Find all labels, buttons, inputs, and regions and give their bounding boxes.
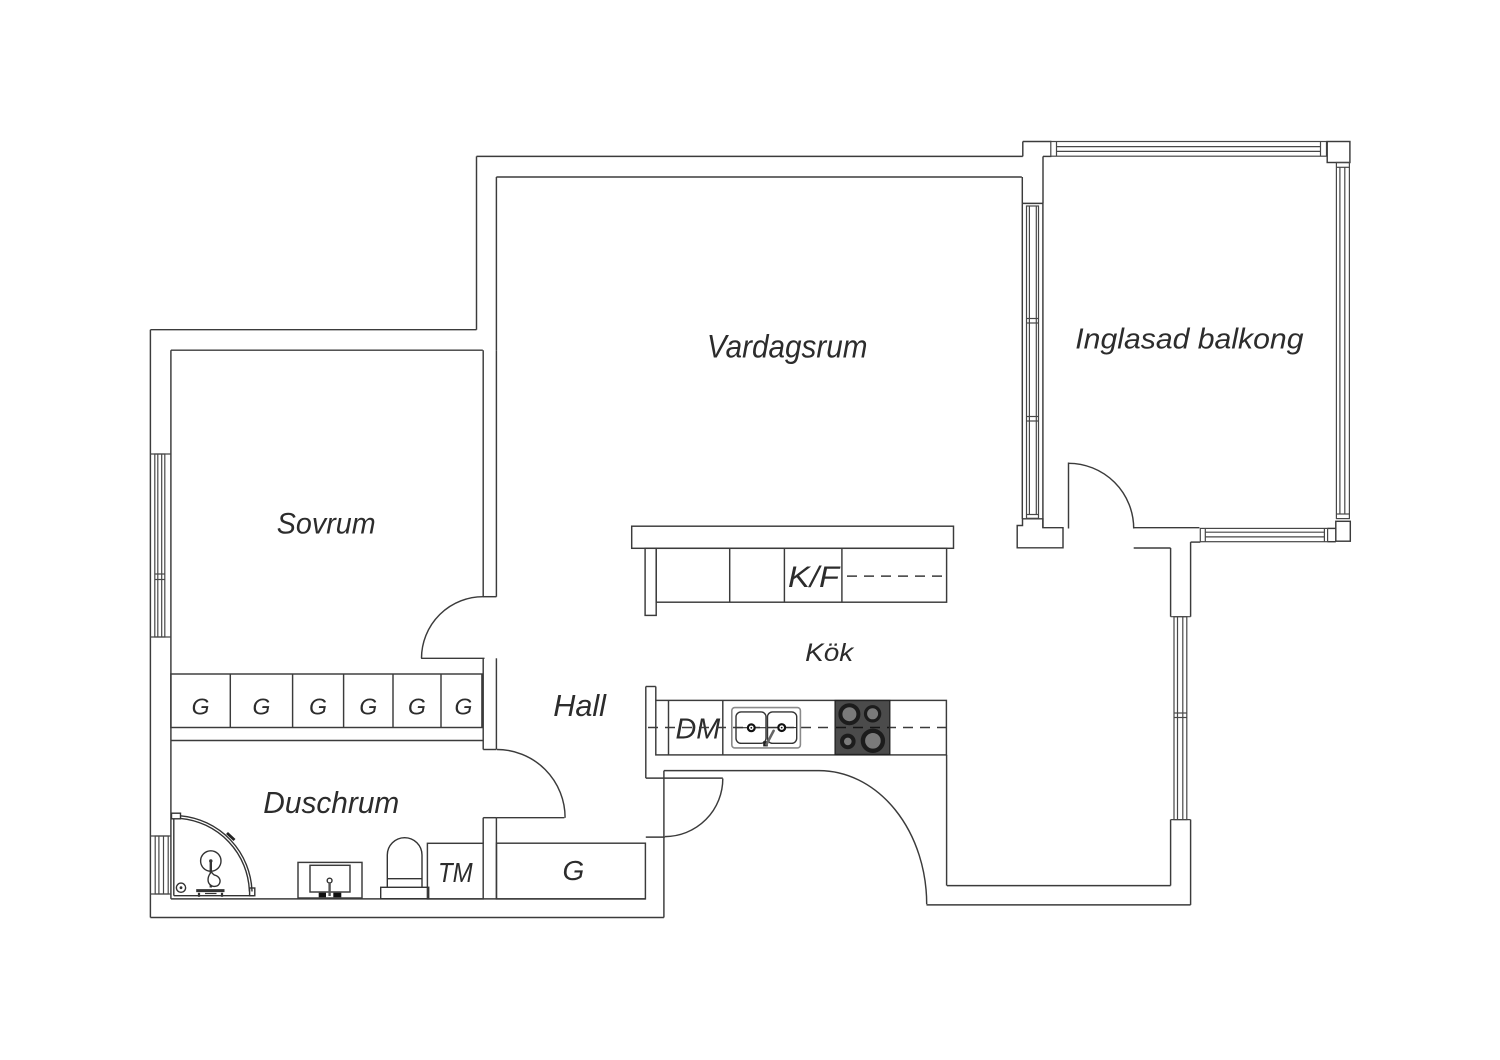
svg-text:Duschrum: Duschrum: [263, 785, 399, 820]
svg-text:Vardagsrum: Vardagsrum: [707, 328, 868, 364]
svg-text:G: G: [253, 693, 271, 719]
svg-text:K/F: K/F: [788, 561, 841, 594]
svg-text:DM: DM: [676, 714, 722, 746]
svg-text:G: G: [192, 693, 210, 719]
svg-text:TM: TM: [438, 857, 473, 888]
svg-text:G: G: [408, 693, 426, 719]
svg-text:Sovrum: Sovrum: [277, 508, 376, 541]
svg-text:Kök: Kök: [805, 639, 855, 667]
svg-text:Inglasad balkong: Inglasad balkong: [1075, 324, 1303, 356]
svg-text:G: G: [455, 693, 473, 719]
svg-text:G: G: [359, 693, 377, 719]
svg-text:G: G: [563, 855, 585, 886]
svg-text:Hall: Hall: [553, 688, 607, 723]
svg-text:G: G: [309, 693, 327, 719]
